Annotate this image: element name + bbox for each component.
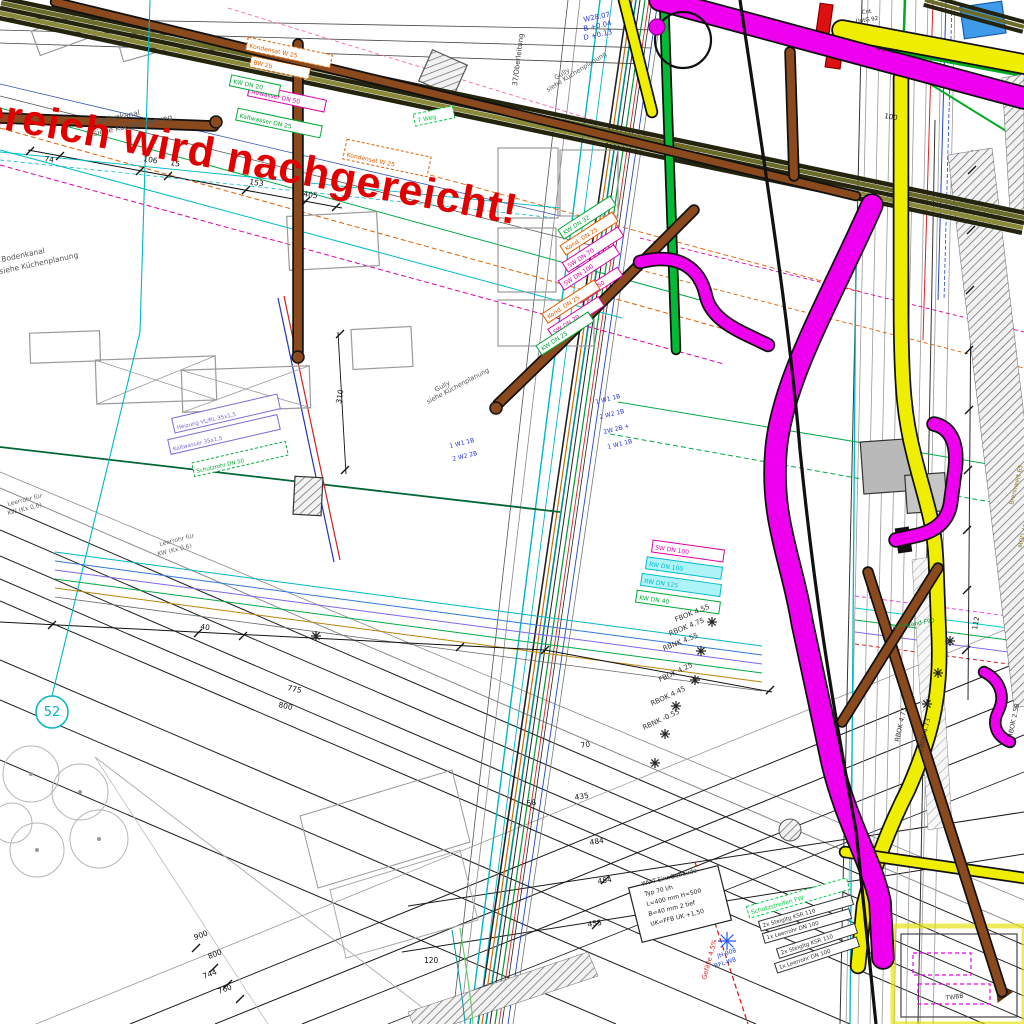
plan-line: [495, 0, 645, 1024]
plan-line: [545, 650, 772, 692]
slope-note: Gefälle 4,5%: [700, 938, 718, 980]
dim-tick: [192, 944, 200, 952]
note-gray: siehe Küchenplanung: [545, 50, 608, 94]
level: RBOK 2.58: [1006, 703, 1021, 739]
code-blue: 2 W2 2B: [452, 450, 478, 463]
plan-line: [502, 0, 652, 1024]
dim: 58: [526, 798, 537, 808]
slab-outline2: [330, 850, 478, 958]
code-blue: 1 W1 1B: [607, 438, 633, 451]
dim: 454: [597, 875, 613, 886]
dim-tick: [456, 643, 464, 651]
code-blue: 1 W1 1B: [595, 393, 621, 406]
level: RBNK -0.55: [641, 708, 680, 732]
duct-magenta-branch: [640, 259, 768, 345]
plan-line: [0, 160, 556, 218]
code-blue: 1 W1 1B: [449, 437, 475, 450]
room-tag: TWBB: [944, 993, 964, 1003]
plan-line: [0, 700, 756, 1024]
tree-symbol: [0, 803, 32, 843]
equip-box7: [351, 326, 413, 369]
dim: 744: [201, 967, 218, 981]
pipe-brown-drop: [790, 52, 794, 176]
dim: 800: [278, 700, 294, 712]
pipe-cap2: [292, 351, 304, 363]
tree-center: [98, 838, 101, 841]
dim: 484: [589, 836, 605, 847]
cad-plan-canvas: 52 Kondensat W 25BW 2bAbwasser DN 50Kalt…: [0, 0, 1024, 1024]
dim: 153: [249, 177, 265, 188]
dim-tick: [963, 586, 971, 594]
magenta-blob: [649, 19, 665, 35]
plan-line: [95, 757, 268, 1024]
dim: 800: [206, 947, 223, 961]
tree-center: [30, 773, 33, 776]
code-blue: 2W 2B +: [603, 423, 630, 436]
dim: 405: [303, 189, 319, 200]
dim-tick: [965, 406, 973, 414]
plan-line: [278, 298, 334, 562]
plan-line: [486, 0, 636, 1024]
cad-plan: 52 Kondensat W 25BW 2bAbwasser DN 50Kalt…: [0, 0, 1024, 1024]
plan-line: [470, 0, 600, 1024]
plan-line: [55, 597, 762, 691]
detail-bubble-label: 52: [44, 705, 61, 720]
dim: 120: [424, 956, 439, 965]
dim-tick: [341, 466, 349, 474]
plan-line: [0, 150, 622, 318]
dim-tick: [766, 686, 774, 694]
equip-box1: [29, 331, 100, 363]
dim: 760: [216, 982, 233, 996]
site-boundary-heavy: [740, 0, 876, 1024]
dim: 100: [884, 112, 899, 122]
bubble-leader: [52, 0, 150, 696]
dim: 15: [170, 158, 181, 169]
plan-line: [452, 0, 568, 1024]
duct-tag: Cnt: [861, 9, 872, 16]
dim: 112: [971, 616, 981, 631]
slab-outline1: [300, 770, 470, 888]
dim-tick: [236, 995, 244, 1003]
shaft-red1: [816, 3, 833, 35]
dim: 455: [587, 918, 603, 929]
dim: 900: [192, 928, 209, 942]
dim-tick: [336, 330, 344, 338]
plan-line: [95, 757, 444, 1024]
hatch-circle: [779, 819, 801, 841]
hydrant-tag: RFL-W8: [713, 956, 737, 970]
equip-cross: [95, 356, 216, 404]
dim-tick: [963, 526, 971, 534]
pipe-cap1: [210, 116, 222, 128]
dim-tick: [964, 466, 972, 474]
plan-line: [0, 152, 560, 208]
level: RBOK 4.45: [649, 685, 686, 708]
tree-center: [79, 791, 82, 794]
dim: 775: [287, 683, 303, 695]
dim: 310: [334, 388, 345, 404]
dim: 40: [200, 622, 211, 632]
plan-line: [460, 0, 580, 1024]
hatch-pit: [293, 476, 323, 515]
dim: 435: [574, 791, 590, 802]
dim: 74: [44, 154, 55, 165]
tree-center: [36, 849, 39, 852]
plan-line: [0, 165, 724, 364]
pipe-cap3: [490, 402, 502, 414]
dim: 70: [580, 740, 591, 750]
